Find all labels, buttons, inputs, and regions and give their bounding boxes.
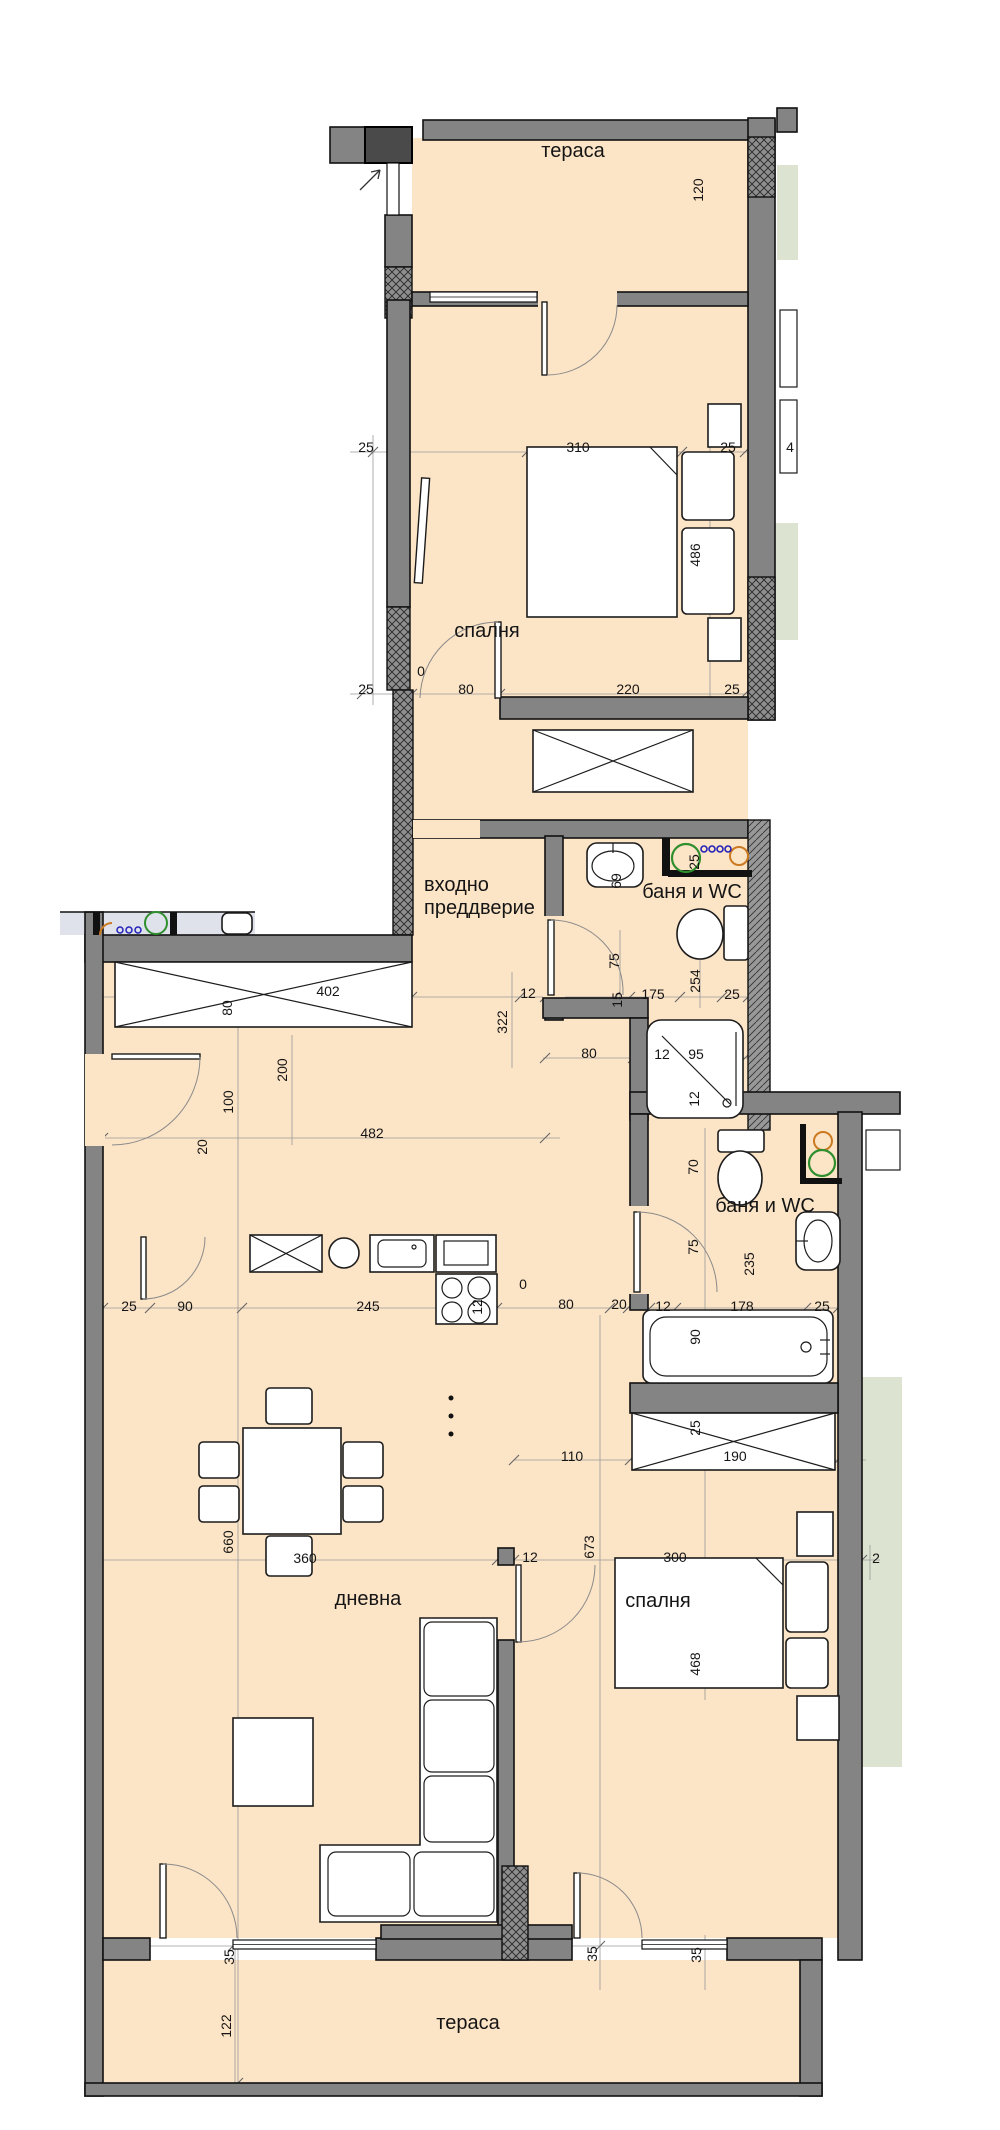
neighbor-floor-right — [862, 1377, 902, 1767]
room-label: тераса — [436, 2012, 500, 2034]
dimension-text: 90 — [177, 1298, 193, 1314]
wall-bedroom1-left — [387, 300, 410, 607]
nightstand-icon — [797, 1696, 839, 1740]
room-label: тераса — [541, 140, 605, 162]
dimension-text: 402 — [316, 983, 340, 999]
dimension-text: 20 — [194, 1139, 210, 1155]
dimension-text: 25 — [686, 854, 702, 870]
coffee-table-icon — [233, 1718, 313, 1806]
dimension-text: 25 — [724, 986, 740, 1002]
bathtub-icon — [643, 1310, 833, 1383]
dimension-text: 69 — [608, 873, 624, 889]
dimension-text: 245 — [356, 1298, 380, 1314]
dimension-text: 482 — [360, 1125, 384, 1141]
room-label: входно — [424, 874, 489, 896]
room-label: спалня — [454, 620, 520, 642]
dimension-text: 254 — [687, 969, 703, 993]
sink-icon — [796, 1212, 840, 1270]
wall-tub-bottom — [630, 1383, 838, 1413]
dimension-text: 660 — [220, 1530, 236, 1554]
dimension-text: 220 — [616, 681, 640, 697]
dimension-text: 12 — [686, 1091, 702, 1107]
dimension-text: 468 — [687, 1652, 703, 1676]
dimension-text: 122 — [218, 2014, 234, 2038]
dimension-text: 25 — [358, 439, 374, 455]
dimension-text: 95 — [688, 1046, 704, 1062]
wardrobe-icon — [115, 962, 412, 1027]
dimension-text: 35 — [584, 1946, 600, 1962]
wall-bedroom1-bottom — [500, 697, 748, 719]
dimension-text: 673 — [581, 1535, 597, 1559]
window-icon — [387, 163, 399, 215]
dimension-text: 190 — [723, 1448, 747, 1464]
nightstand-icon — [708, 618, 741, 661]
dimension-text: 80 — [558, 1296, 574, 1312]
dimension-text: 360 — [293, 1550, 317, 1566]
wall-terrace2-bottom — [85, 2083, 822, 2096]
neighbor-furniture — [780, 310, 900, 1170]
dimension-text: 25 — [687, 1420, 703, 1436]
dimension-text: 75 — [606, 953, 622, 969]
dimension-text: 310 — [566, 439, 590, 455]
dimension-text: 120 — [690, 178, 706, 202]
floor-plan-svg: 1203102525448625080220256925752541217525… — [0, 0, 1000, 2130]
dimension-text: 80 — [458, 681, 474, 697]
dimension-text: 322 — [494, 1010, 510, 1034]
dimension-text: 486 — [687, 543, 703, 567]
dimension-text: 235 — [741, 1252, 757, 1276]
toilet-icon — [718, 1130, 764, 1205]
room-label: спалня — [625, 1590, 691, 1612]
dimension-text: 35 — [221, 1949, 237, 1965]
arrow-icon — [360, 170, 380, 190]
dimension-text: 25 — [814, 1298, 830, 1314]
dimension-text: 80 — [581, 1045, 597, 1061]
room-label: дневна — [335, 1588, 403, 1610]
room-label: преддверие — [424, 897, 535, 919]
dimension-text: 25 — [358, 681, 374, 697]
wall-terrace-top — [423, 120, 775, 140]
dimension-text: 4 — [786, 439, 794, 455]
dimension-text: 0 — [519, 1276, 527, 1292]
dimension-text: 100 — [220, 1090, 236, 1114]
dimension-text: 25 — [720, 439, 736, 455]
dimension-text: 25 — [724, 681, 740, 697]
wall-column — [365, 127, 412, 163]
wall-hall-top — [85, 935, 412, 962]
nightstand-icon — [797, 1512, 833, 1556]
dimension-text: 0 — [417, 663, 425, 679]
wall-right-lower — [838, 1112, 862, 1960]
dimension-text: 12 — [654, 1046, 670, 1062]
neighbor-floor-right-top — [777, 165, 798, 260]
dimension-text: 75 — [685, 1239, 701, 1255]
wardrobe-icon — [533, 730, 693, 792]
dimension-text: 80 — [219, 1000, 235, 1016]
room-label: баня и WC — [642, 881, 742, 903]
dimension-text: 90 — [687, 1329, 703, 1345]
dimension-text: 178 — [730, 1298, 754, 1314]
dimension-text: 12 — [655, 1298, 671, 1314]
dimension-text: 25 — [121, 1298, 137, 1314]
dimension-text: 12 — [469, 1299, 485, 1315]
wall-bath1-right — [748, 820, 770, 1130]
room-label: баня и WC — [715, 1195, 815, 1217]
wall-terrace2-right — [800, 1960, 822, 2096]
dimension-text: 2 — [872, 1550, 880, 1566]
dimension-text: 175 — [641, 986, 665, 1002]
toilet-icon — [677, 906, 748, 960]
dimension-text: 20 — [611, 1296, 627, 1312]
dimension-text: 12 — [522, 1549, 538, 1565]
floor-plan-page: 1203102525448625080220256925752541217525… — [0, 0, 1000, 2130]
stove-icon — [436, 1274, 497, 1324]
dimension-text: 70 — [685, 1159, 701, 1175]
dimension-text: 110 — [561, 1448, 584, 1464]
dimension-text: 12 — [520, 985, 536, 1001]
dimension-text: 300 — [663, 1549, 687, 1565]
dimension-text: 35 — [688, 1947, 704, 1963]
dimension-text: 15 — [609, 992, 625, 1008]
dimension-text: 200 — [274, 1058, 290, 1082]
